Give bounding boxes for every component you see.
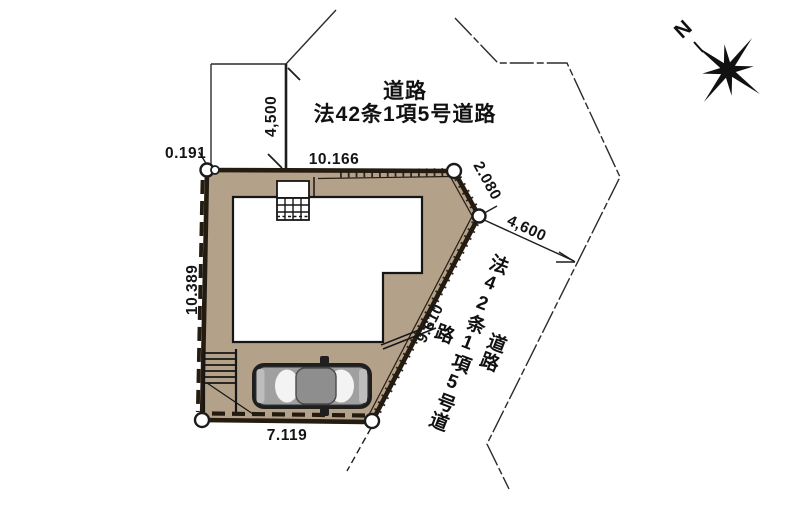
car-mirror	[320, 356, 329, 364]
dim-road-width-right: 4,600	[504, 212, 549, 245]
road-label-top-line2: 法42条1項5号道路	[280, 103, 530, 126]
car-mirror	[320, 408, 329, 416]
dim-road-width-top: 4,500	[263, 96, 280, 137]
corner-marker	[195, 413, 209, 427]
dim-edge-left: 10.389	[184, 265, 201, 315]
dimension-tick	[288, 68, 300, 80]
dim-edge-top-right: 2.080	[470, 159, 505, 203]
dim-edge-bottom: 7.119	[267, 427, 307, 444]
dim-offset-top-left: 0.191	[165, 145, 206, 162]
car	[252, 356, 372, 416]
car-front-bumper	[359, 369, 367, 403]
corner-marker	[473, 210, 486, 223]
compass-rose	[696, 38, 760, 102]
site-plan-canvas: 0.191 10.166 4,500 10.389 2.080 4,600 9.…	[0, 0, 800, 531]
arrowhead-4600	[559, 252, 575, 262]
corner-marker	[365, 414, 379, 428]
car-roof	[296, 368, 336, 404]
road-north-edge-diagonal	[286, 10, 336, 64]
road-label-top: 道路 法42条1項5号道路	[280, 80, 530, 126]
entrance-porch	[277, 177, 314, 220]
corner-marker-offset	[211, 166, 219, 174]
road-label-top-line1: 道路	[280, 80, 530, 103]
leader-bottom-right	[347, 428, 371, 471]
dimension-tick	[268, 154, 282, 168]
north-pointer-line	[694, 42, 703, 52]
corner-marker	[447, 164, 461, 178]
fence-hatch-top	[340, 172, 452, 174]
dim-edge-top: 10.166	[309, 151, 359, 168]
car-rear-bumper	[257, 369, 265, 403]
